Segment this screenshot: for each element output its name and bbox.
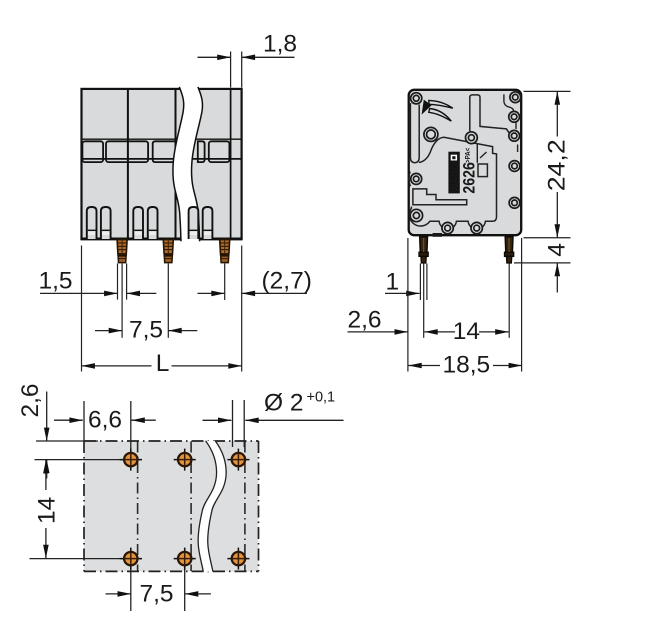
svg-text:18,5: 18,5 <box>443 352 491 379</box>
svg-text:14: 14 <box>453 318 480 345</box>
svg-text:1,8: 1,8 <box>263 30 297 57</box>
svg-text:(2,7): (2,7) <box>262 268 312 295</box>
svg-text:Ø 2: Ø 2 <box>264 390 304 417</box>
svg-text:>PA<: >PA< <box>465 148 472 163</box>
svg-text:6,6: 6,6 <box>88 407 122 434</box>
svg-text:4: 4 <box>544 243 571 257</box>
svg-text:L: L <box>156 350 170 377</box>
svg-text:WAGO: WAGO <box>449 163 461 193</box>
svg-text:1: 1 <box>386 269 400 296</box>
svg-text:1,5: 1,5 <box>39 268 73 295</box>
svg-text:7,5: 7,5 <box>140 581 174 608</box>
svg-text:14: 14 <box>34 497 61 524</box>
svg-text:7,5: 7,5 <box>129 317 163 344</box>
svg-text:+0,1: +0,1 <box>307 390 336 406</box>
svg-text:2626: 2626 <box>461 162 479 194</box>
svg-text:2,6: 2,6 <box>348 307 382 334</box>
svg-text:2,6: 2,6 <box>17 383 44 417</box>
svg-text:24,2: 24,2 <box>544 139 571 191</box>
